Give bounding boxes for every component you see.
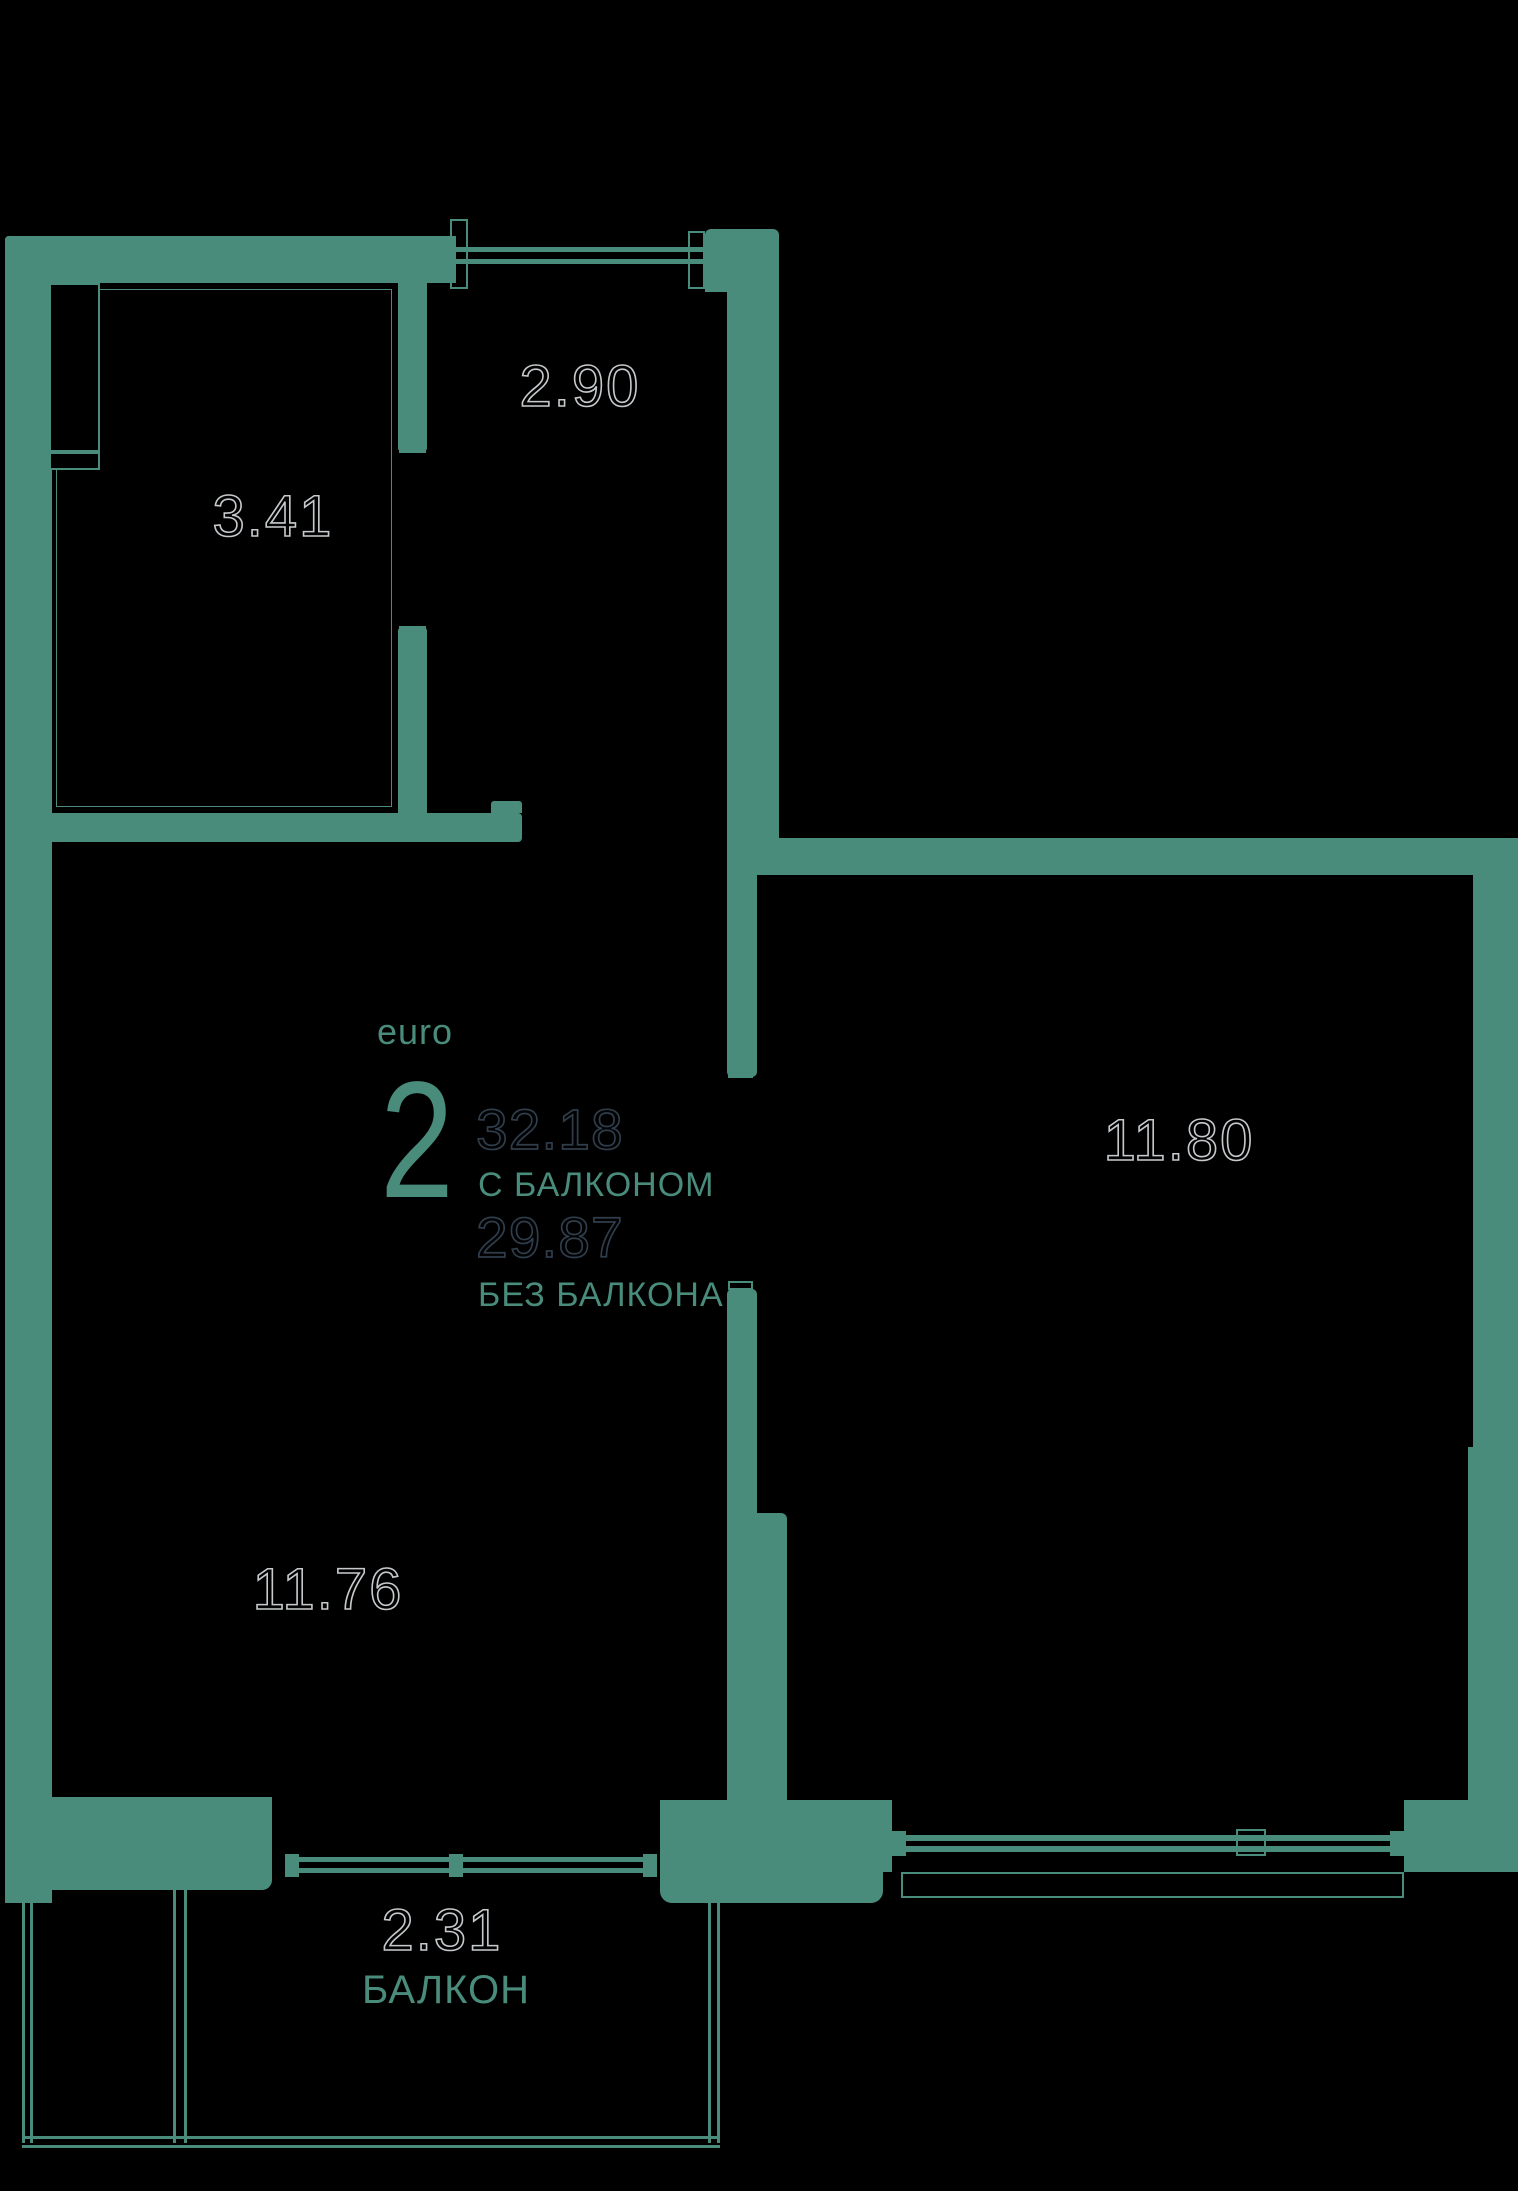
wall-left xyxy=(5,236,52,1903)
room-right-window-sill xyxy=(901,1872,1404,1898)
wall-right xyxy=(1473,875,1518,1872)
top-window-jamb-left xyxy=(450,219,468,289)
center-door-jamb-top xyxy=(728,1069,753,1078)
room-right-window-cap xyxy=(892,1831,906,1856)
balcony-name-label: БАЛКОН xyxy=(362,1970,530,2010)
area-with-balcony-label: С БАЛКОНОМ xyxy=(478,1168,715,1202)
center-door-jamb-bottom xyxy=(728,1281,753,1290)
balcony-window-cap xyxy=(643,1854,657,1877)
balcony-divider-line xyxy=(173,1890,176,2143)
bathroom-area-label: 3.41 xyxy=(213,488,334,546)
top-window-jamb-right xyxy=(688,231,705,289)
wall-top xyxy=(5,236,456,283)
bathroom-shaft xyxy=(49,283,100,452)
top-window-line xyxy=(456,259,705,264)
wall-bathroom-right-upper xyxy=(398,283,427,452)
balcony-area-label: 2.31 xyxy=(382,1902,503,1960)
balcony-window-line xyxy=(285,1857,657,1862)
balcony-window-line xyxy=(285,1868,657,1873)
room-right-window-cap xyxy=(1390,1831,1404,1856)
bathroom-shaft-base xyxy=(49,452,100,470)
room-right-window-mullion-inner xyxy=(1248,1835,1266,1841)
top-window-line xyxy=(456,247,705,252)
floor-plan: 2.90 3.41 11.80 11.76 2.31 БАЛКОН euro 2… xyxy=(0,0,1518,2191)
balcony-bottom-line xyxy=(22,2136,720,2139)
unit-type-label: euro xyxy=(377,1014,453,1050)
room-right-window-line xyxy=(892,1846,1404,1852)
hallway-area-label: 2.90 xyxy=(520,358,641,416)
bathroom-door-jamb-bottom xyxy=(399,626,426,635)
area-with-balcony-value: 32.18 xyxy=(476,1102,624,1159)
unit-type-number: 2 xyxy=(380,1058,454,1224)
balcony-right-line xyxy=(717,1903,720,2143)
balcony-bottom-line xyxy=(22,2145,720,2148)
wall-center-lower xyxy=(727,1289,757,1800)
area-without-balcony-value: 29.87 xyxy=(476,1210,624,1267)
wall-mid-pilaster xyxy=(491,801,522,813)
area-without-balcony-label: БЕЗ БАЛКОНА xyxy=(478,1278,724,1312)
balcony-window-cap xyxy=(285,1854,299,1877)
balcony-right-line xyxy=(708,1903,711,2143)
wall-room-right-top xyxy=(757,838,1518,875)
room-left-area-label: 11.76 xyxy=(253,1561,404,1619)
room-right-window-line xyxy=(892,1835,1404,1841)
room-right-area-label: 11.80 xyxy=(1104,1112,1255,1170)
wall-bottom-right-pier-right xyxy=(1404,1800,1473,1872)
balcony-left-line xyxy=(22,1903,25,2143)
bathroom-door-jamb-top xyxy=(399,444,426,453)
wall-center-upper xyxy=(727,283,779,875)
wall-mid xyxy=(5,813,522,842)
balcony-left-line xyxy=(30,1903,33,2143)
balcony-window-cap xyxy=(449,1854,463,1877)
wall-center-pier xyxy=(727,875,757,1077)
wall-bottom-right-pier-left xyxy=(787,1800,892,1872)
wall-bottom-left-notch xyxy=(5,1890,52,1903)
balcony-divider-line xyxy=(184,1890,187,2143)
room-right-window-mullion xyxy=(1236,1829,1266,1856)
wall-bottom-left xyxy=(5,1797,272,1890)
wall-bathroom-right-lower xyxy=(398,627,427,813)
wall-center-lower-wide xyxy=(757,1513,787,1800)
